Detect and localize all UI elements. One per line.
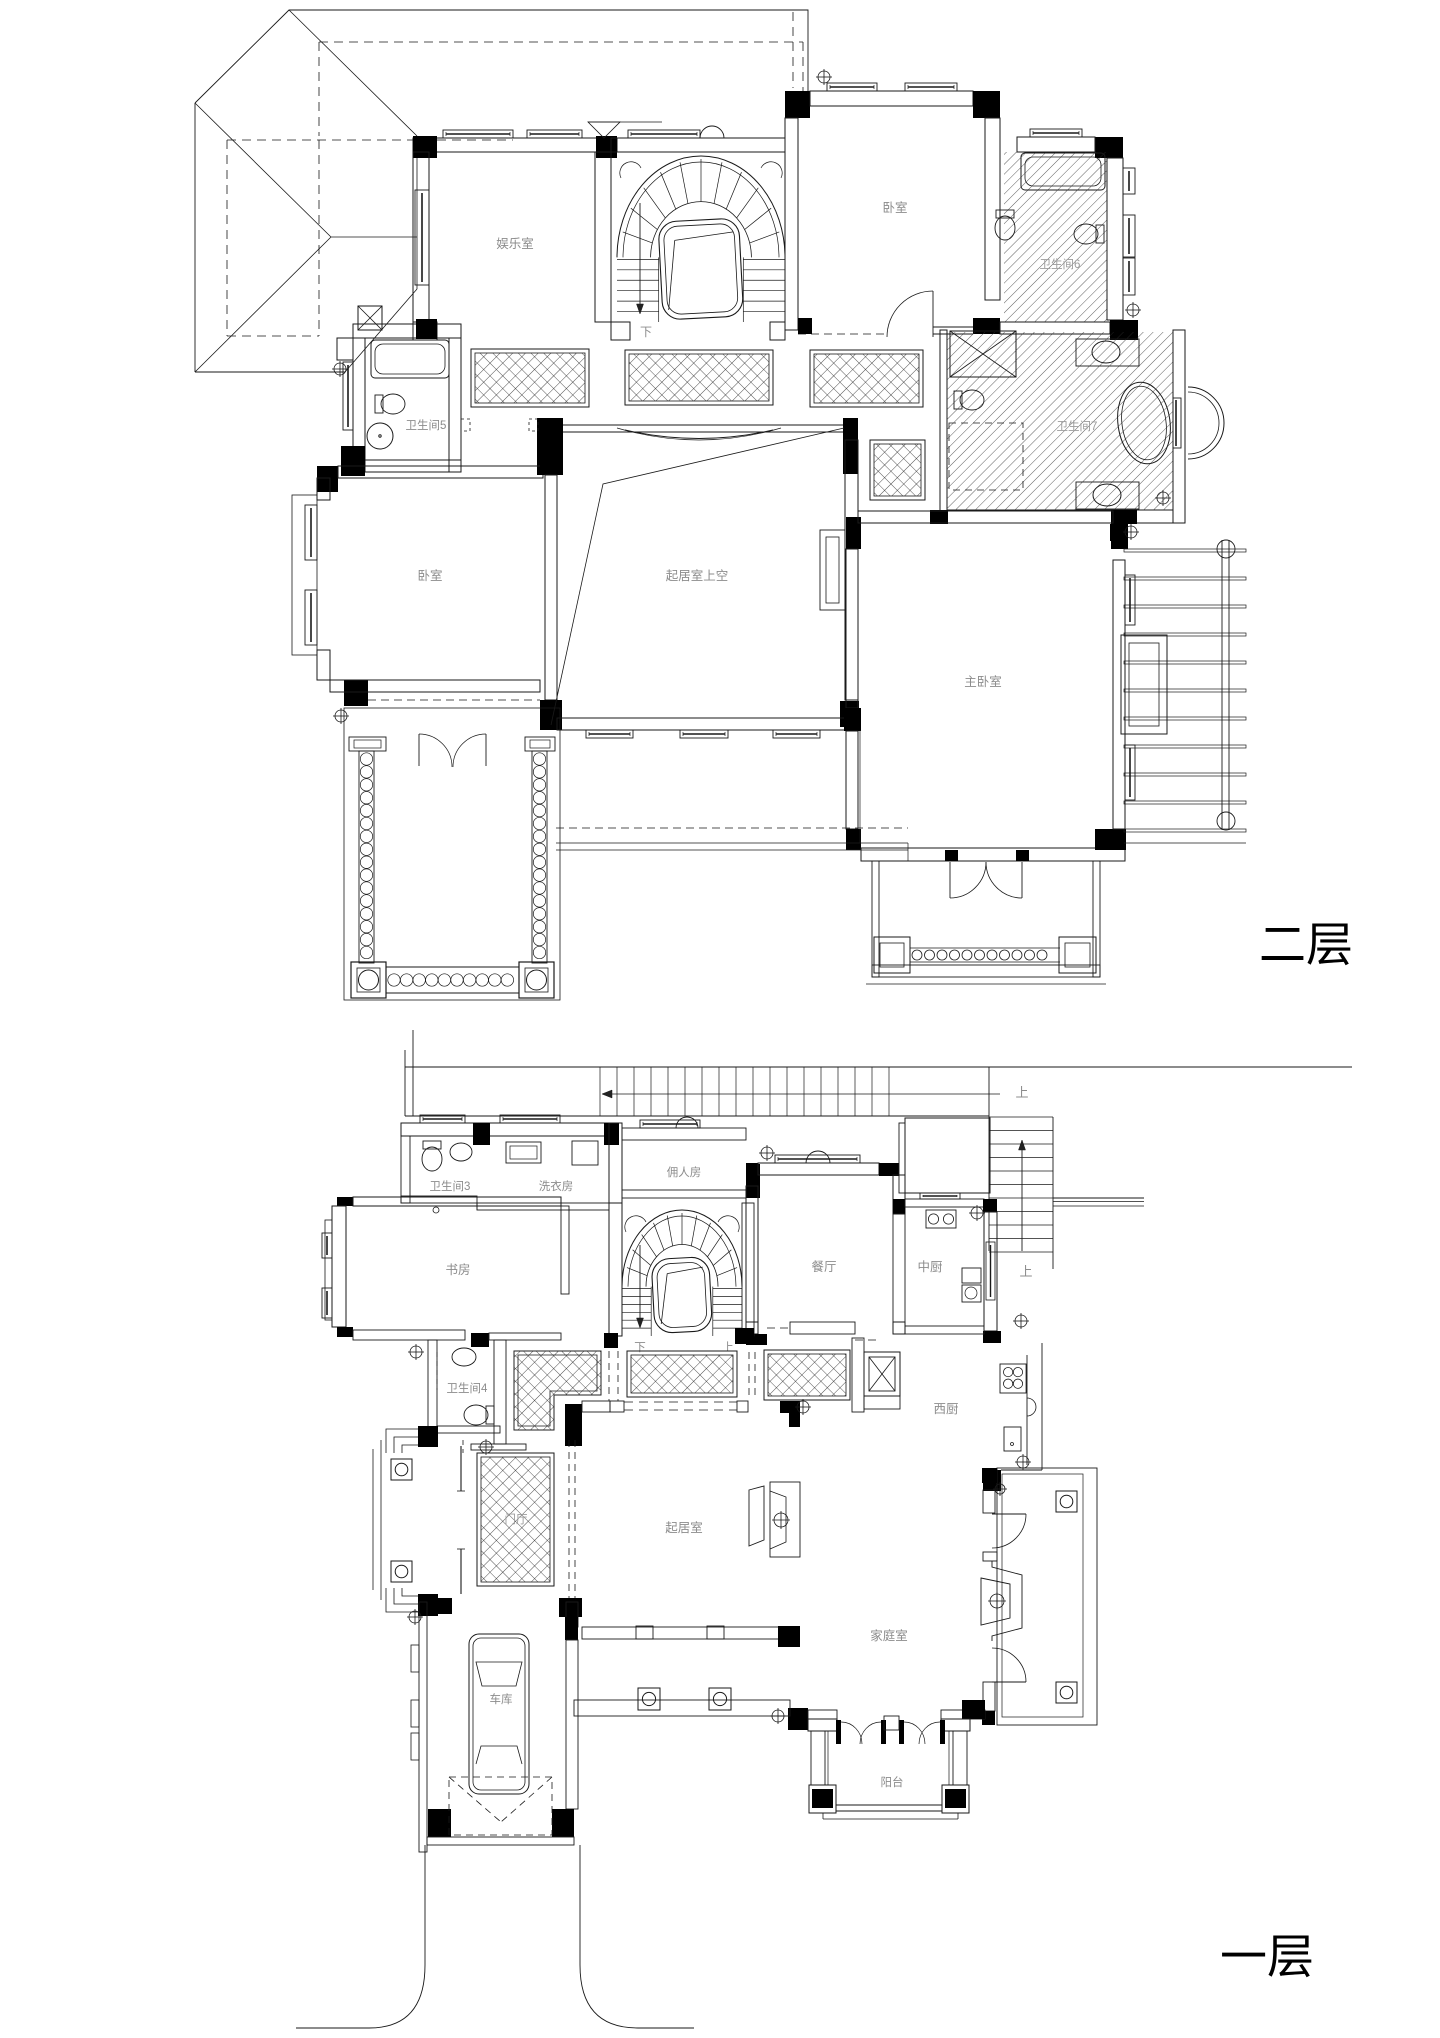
svg-text:卫生间3: 卫生间3 <box>430 1179 471 1193</box>
svg-text:中厨: 中厨 <box>917 1259 942 1274</box>
svg-text:卫生间6: 卫生间6 <box>1040 257 1081 271</box>
svg-text:书房: 书房 <box>445 1262 470 1277</box>
svg-text:二层: 二层 <box>1259 918 1353 971</box>
svg-text:上: 上 <box>1019 1264 1032 1279</box>
svg-text:卧室: 卧室 <box>882 200 907 215</box>
svg-text:洗衣房: 洗衣房 <box>539 1179 574 1193</box>
svg-text:家庭室: 家庭室 <box>870 1628 908 1643</box>
svg-text:下: 下 <box>640 325 652 339</box>
svg-text:下: 下 <box>634 1342 646 1354</box>
svg-text:卫生间4: 卫生间4 <box>447 1381 488 1395</box>
svg-text:西厨: 西厨 <box>933 1402 958 1416</box>
svg-text:起居室上空: 起居室上空 <box>666 568 729 583</box>
svg-text:卫生间5: 卫生间5 <box>406 418 447 432</box>
svg-text:起居室: 起居室 <box>665 1520 703 1535</box>
svg-text:阳台: 阳台 <box>881 1775 904 1789</box>
svg-text:门厅: 门厅 <box>505 1512 528 1526</box>
svg-text:车库: 车库 <box>490 1692 513 1706</box>
svg-text:卫生间7: 卫生间7 <box>1057 419 1098 433</box>
svg-text:上: 上 <box>722 1341 734 1354</box>
svg-text:一层: 一层 <box>1220 1930 1314 1983</box>
svg-text:餐厅: 餐厅 <box>811 1259 836 1274</box>
svg-text:上: 上 <box>1015 1085 1028 1100</box>
svg-text:娱乐室: 娱乐室 <box>496 236 534 251</box>
svg-text:佣人房: 佣人房 <box>667 1166 702 1179</box>
svg-text:卧室: 卧室 <box>417 568 442 583</box>
svg-text:主卧室: 主卧室 <box>964 674 1002 689</box>
